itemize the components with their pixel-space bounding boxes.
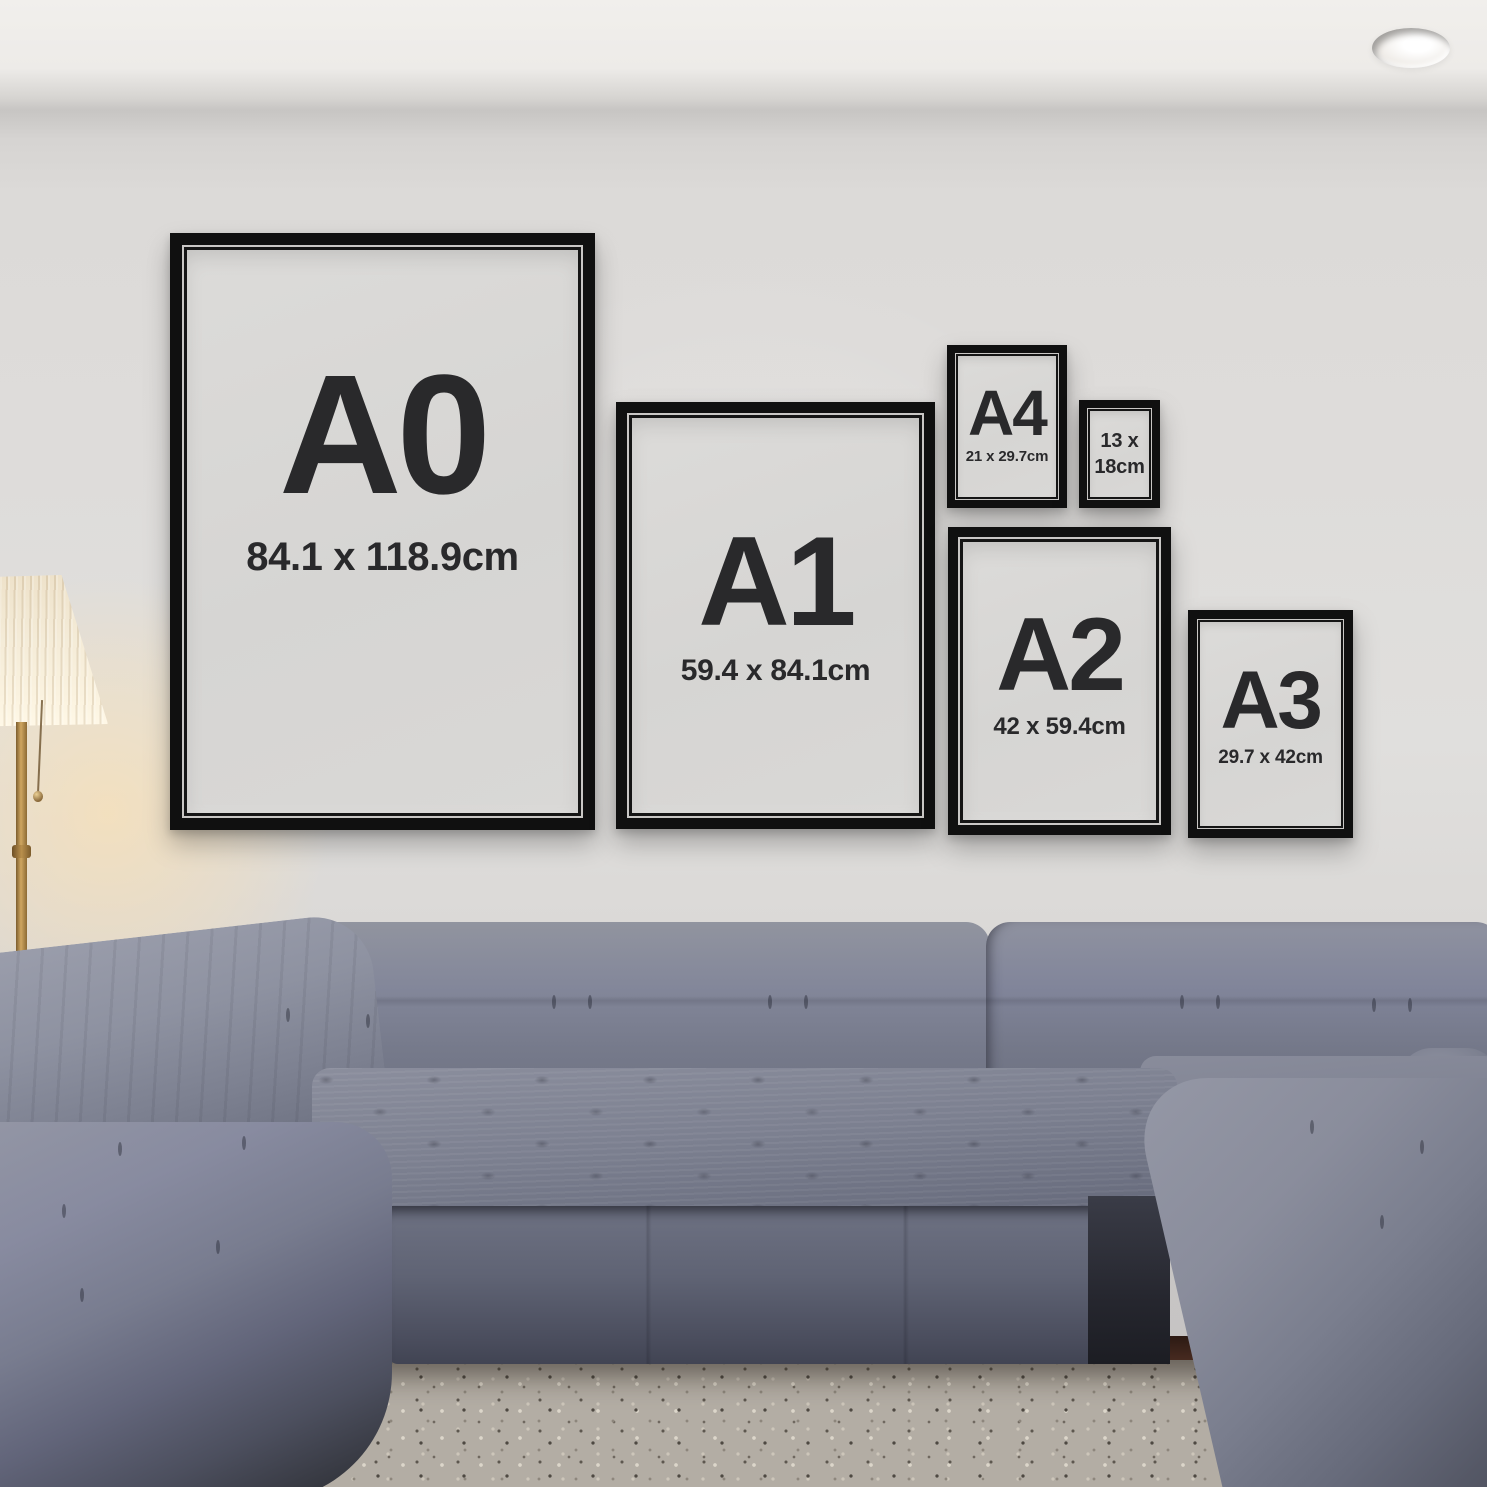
frame-a3-size-label: A3 [1221, 667, 1321, 734]
lamp-stem-joint [12, 845, 31, 858]
sofa-tuft [804, 995, 808, 1009]
frame-a0-dimensions: 84.1 x 118.9cm [246, 537, 518, 577]
sofa-tuft [588, 995, 592, 1009]
frame-a2-mat: A2 42 x 59.4cm [958, 537, 1161, 825]
recessed-ceiling-light [1372, 28, 1450, 68]
lamp-pull-chain-ball [33, 791, 43, 802]
sofa-tuft [1372, 998, 1376, 1012]
frame-a3: A3 29.7 x 42cm [1188, 610, 1353, 838]
sofa-tuft [366, 1014, 370, 1028]
frame-13x18: 13 x 18cm [1079, 400, 1160, 508]
sofa-tuft [1420, 1140, 1424, 1154]
living-room-scene: A0 84.1 x 118.9cm A1 59.4 x 84.1cm A4 21… [0, 0, 1487, 1487]
sofa-tuft [1408, 998, 1412, 1012]
frame-a4-mat: A4 21 x 29.7cm [955, 353, 1059, 500]
sofa-tuft [242, 1136, 246, 1150]
sofa-tuft [118, 1142, 122, 1156]
frame-a1-dimensions: 59.4 x 84.1cm [681, 656, 871, 686]
frame-13x18-dimensions-line1: 13 x [1100, 428, 1138, 454]
frame-a0: A0 84.1 x 118.9cm [170, 233, 595, 830]
frame-a4-size-label: A4 [968, 387, 1046, 439]
sofa-tuft [552, 995, 556, 1009]
sofa-tuft [768, 995, 772, 1009]
sofa-tuft [1216, 995, 1220, 1009]
frame-a1: A1 59.4 x 84.1cm [616, 402, 935, 829]
sofa-bench-seat-cushion [312, 1068, 1177, 1226]
frame-a0-mat: A0 84.1 x 118.9cm [182, 245, 583, 818]
sofa-tuft [216, 1240, 220, 1254]
frame-a2: A2 42 x 59.4cm [948, 527, 1171, 835]
sofa-tuft [80, 1288, 84, 1302]
frame-a0-size-label: A0 [279, 366, 486, 505]
sofa-tuft [1310, 1120, 1314, 1134]
frame-a3-dimensions: 29.7 x 42cm [1218, 748, 1323, 767]
sofa-tuft [1380, 1215, 1384, 1229]
sofa-left-chaise [0, 1122, 392, 1487]
sofa-tuft [62, 1204, 66, 1218]
frame-a4-dimensions: 21 x 29.7cm [966, 449, 1049, 464]
sofa-tuft [1180, 995, 1184, 1009]
frame-a1-size-label: A1 [698, 529, 853, 633]
sofa-section-gap-shadow [1088, 1196, 1170, 1364]
frame-a3-mat: A3 29.7 x 42cm [1197, 619, 1344, 829]
frame-13x18-dimensions-line2: 18cm [1094, 454, 1144, 480]
frame-a1-mat: A1 59.4 x 84.1cm [627, 413, 924, 818]
sofa-front-base-panel [388, 1206, 1168, 1364]
frame-a2-size-label: A2 [996, 613, 1123, 698]
frame-a2-dimensions: 42 x 59.4cm [993, 715, 1125, 739]
frame-13x18-mat: 13 x 18cm [1087, 408, 1152, 500]
sofa-tuft [286, 1008, 290, 1022]
frame-a4: A4 21 x 29.7cm [947, 345, 1067, 508]
